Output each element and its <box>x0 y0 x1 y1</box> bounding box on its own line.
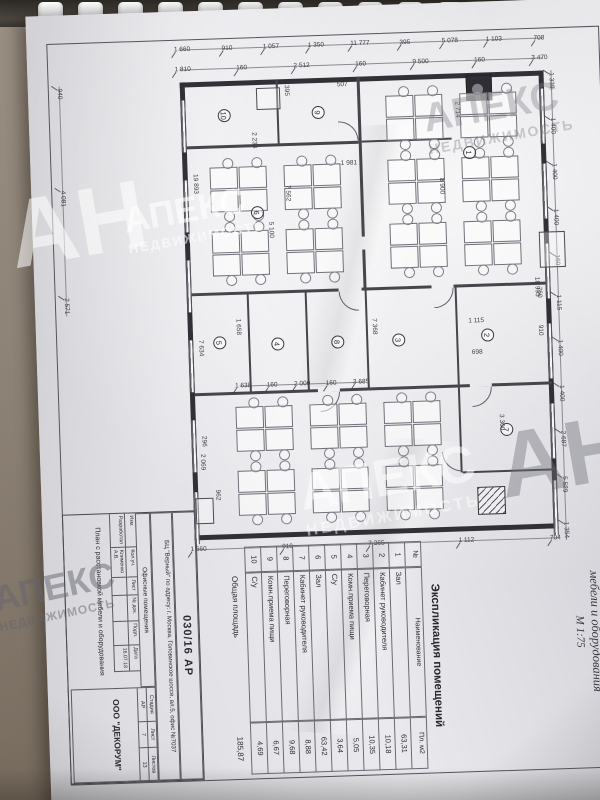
room-number: 3 <box>392 333 405 346</box>
dim-value: 3 470 <box>529 54 550 62</box>
sig-value-cell: Разработал <box>109 514 125 548</box>
desk-cluster <box>384 400 441 446</box>
chair <box>355 511 366 522</box>
sig-header-cell: Лист <box>126 577 138 595</box>
dim-value: 1 400 <box>549 116 557 137</box>
desk-cluster <box>462 155 519 201</box>
explication-cell: 6,67 <box>266 722 284 775</box>
dim-value: 1 660 <box>172 46 193 54</box>
window <box>542 163 549 218</box>
stage-value: АР <box>137 688 147 722</box>
explication-cell: 63,31 <box>394 717 412 770</box>
desk <box>386 488 415 511</box>
room-number: 9 <box>311 106 324 119</box>
partition-wall <box>192 288 339 296</box>
desk-cluster <box>213 230 270 276</box>
dim-value: 940 <box>56 86 63 101</box>
stage-block: Стадия Лист Листов АР 7 13 ООО "ДЕКОРУМ" <box>71 687 159 784</box>
desk <box>413 423 442 446</box>
dim-value: 160 <box>324 379 339 386</box>
door-arc <box>434 288 455 309</box>
desk <box>419 245 448 268</box>
explication-cell: 9 <box>260 546 277 573</box>
dim-value: 1 400 <box>550 161 558 182</box>
desk <box>315 227 344 250</box>
dim-value: 1 354 <box>562 520 570 541</box>
chair <box>281 513 292 524</box>
window <box>180 100 187 152</box>
desk <box>339 426 368 449</box>
dim-label: 1 981 <box>341 159 358 167</box>
window <box>188 340 195 392</box>
desk <box>212 231 241 254</box>
desk <box>386 118 415 141</box>
desk <box>286 251 315 274</box>
desk <box>338 403 367 426</box>
explication-cell: 1 <box>388 541 405 568</box>
dim-value: 1 810 <box>172 66 193 74</box>
dim-label: 962 <box>214 489 221 500</box>
desk <box>238 166 267 189</box>
desk <box>460 115 489 138</box>
shaft <box>195 498 214 525</box>
chair <box>298 208 309 219</box>
explication-cell: 8,88 <box>298 720 316 773</box>
desk <box>384 424 413 447</box>
sheet-label: Лист <box>147 722 157 748</box>
dim-value: 910 <box>219 44 234 51</box>
dim-value: 1 112 <box>456 537 476 545</box>
sheet-value: 7 <box>138 722 148 748</box>
dim-label: 19 893 <box>192 174 200 194</box>
desk-cluster <box>236 405 293 451</box>
desk <box>414 464 443 487</box>
col-header-no: № <box>404 541 422 568</box>
chair <box>279 449 290 460</box>
chair <box>429 508 440 519</box>
chair <box>224 211 235 222</box>
sig-value-cell <box>112 596 128 622</box>
explication-cell: 8 <box>276 545 293 572</box>
dim-value: 1 339 <box>547 70 555 91</box>
dim-label: 2 234 <box>250 132 258 149</box>
explication-cell: 2 <box>372 542 389 569</box>
sig-header-cell: № док. <box>127 595 139 621</box>
partition-wall <box>463 468 555 473</box>
desk <box>311 468 340 491</box>
chair <box>507 263 518 274</box>
window <box>191 420 198 472</box>
chair <box>400 139 411 150</box>
chair <box>226 275 237 286</box>
dim-value: 5 529 <box>561 474 569 495</box>
sig-value-cell: 16.07.18 <box>113 646 129 672</box>
desk <box>212 254 241 277</box>
desk <box>309 404 338 427</box>
title-block: 030/16 АР БЦ "Верный" по адресу: г. Моск… <box>62 510 205 784</box>
chair <box>255 274 266 285</box>
sig-header-cell: Подп. <box>127 621 139 645</box>
desk <box>489 114 518 137</box>
chair <box>404 267 415 278</box>
explication-title: Экспликация помещений <box>427 540 447 770</box>
dim-label: 2 714 <box>453 101 461 118</box>
chair <box>433 266 444 277</box>
room-number: 2 <box>481 328 494 341</box>
desk <box>493 242 522 265</box>
dim-label: 3 300 <box>498 414 506 431</box>
desk <box>283 164 312 187</box>
explication-cell: 10,18 <box>378 718 396 771</box>
explication-cell: 5 <box>324 544 341 571</box>
chair <box>300 272 311 283</box>
dim-value: 395 <box>397 38 412 45</box>
desk <box>418 222 447 245</box>
desk-cluster <box>312 467 369 513</box>
desk <box>385 95 414 118</box>
shaft <box>256 87 281 110</box>
chair <box>402 203 413 214</box>
desk-cluster <box>460 91 517 137</box>
desk <box>238 470 267 493</box>
desk <box>461 156 490 179</box>
dim-value: 160 <box>265 381 280 388</box>
dim-value: 708 <box>531 34 546 41</box>
desk <box>463 220 492 243</box>
total-value: 185,87 <box>231 723 252 776</box>
door-arc <box>472 386 493 407</box>
explication-cell: 4,69 <box>250 722 268 775</box>
chair <box>324 448 335 459</box>
sheets-value: 13 <box>139 748 149 782</box>
desk-cluster <box>390 222 447 268</box>
chair <box>398 445 409 456</box>
explication-cell: 7 <box>292 545 309 572</box>
desk-cluster <box>464 219 521 265</box>
desk <box>265 428 294 451</box>
desk <box>459 92 488 115</box>
window <box>549 403 556 458</box>
dim-value: 2 687 <box>559 429 567 450</box>
chair <box>429 138 440 149</box>
dim-value: 4 081 <box>59 189 67 210</box>
dimension-chain-bottom: 9404 0812 571 <box>56 86 76 316</box>
stage-label: Стадия <box>146 688 156 722</box>
desk <box>267 469 296 492</box>
desk-cluster <box>386 94 443 140</box>
partition-wall <box>357 77 365 237</box>
dim-label: 698 <box>472 349 483 356</box>
desk <box>414 94 443 117</box>
chair <box>326 512 337 523</box>
drawing-sheet: План расстановки мебели и оборудования М… <box>46 26 600 786</box>
partition-wall <box>187 141 359 150</box>
dim-value: 1 400 <box>558 383 566 404</box>
desk-cluster <box>239 469 296 515</box>
dim-value: 1 057 <box>261 43 282 51</box>
dim-value: 5 078 <box>439 37 460 45</box>
dim-label: 507 <box>337 81 348 88</box>
dim-label: 1 658 <box>234 319 242 336</box>
chair <box>353 447 364 458</box>
explication-cell: 5,05 <box>346 719 364 772</box>
dim-label: 2 069 <box>199 454 207 471</box>
desk <box>267 492 296 515</box>
partition-wall <box>362 285 432 290</box>
partition-wall <box>362 250 366 290</box>
desk <box>209 167 238 190</box>
room-number: 8 <box>331 335 344 348</box>
desk <box>264 405 293 428</box>
dim-label: 5 100 <box>267 222 275 239</box>
dim-value: 2 512 <box>291 62 312 70</box>
desk-cluster <box>284 163 341 209</box>
dim-value: 1 400 <box>556 337 564 358</box>
col-header-area: Пл. м2 <box>410 717 429 770</box>
paper-sheet: План расстановки мебели и оборудования М… <box>25 0 600 800</box>
dim-label: 910 <box>537 325 544 336</box>
explication-cell: 6 <box>308 544 325 571</box>
room-number: 5 <box>213 336 226 349</box>
desk-cluster <box>386 464 443 510</box>
dim-value: 160 <box>235 64 250 71</box>
sig-value-cell <box>111 578 127 596</box>
room-number: 10 <box>218 109 231 122</box>
desk <box>340 467 369 490</box>
dim-label: 7 562 <box>284 185 292 202</box>
chair <box>329 271 340 282</box>
sig-value-cell <box>112 622 128 646</box>
desk <box>488 91 517 114</box>
dim-label: 8 900 <box>438 178 446 195</box>
explication-cell: 63,42 <box>314 720 332 773</box>
desk <box>312 490 341 513</box>
photo-of-floor-plan-document: План расстановки мебели и оборудования М… <box>0 0 600 800</box>
desk <box>241 253 270 276</box>
dim-value: 11 777 <box>349 40 373 48</box>
desk <box>390 246 419 269</box>
desk <box>238 493 267 516</box>
explication-table: Экспликация помещений № Наименование Пл.… <box>225 540 447 777</box>
explication-rows: 1Зал63,312Кабинет руководителя10,183Пере… <box>244 541 412 776</box>
desk <box>341 490 370 513</box>
dim-label: 7 634 <box>197 340 205 357</box>
desk <box>210 190 239 213</box>
room-number: 4 <box>271 337 284 350</box>
window <box>552 480 559 535</box>
chair <box>505 200 516 211</box>
door-arc <box>442 451 463 472</box>
desk <box>315 250 344 273</box>
sig-header-cell: Дата <box>128 645 140 671</box>
desk-cluster <box>287 227 344 273</box>
partition-wall <box>455 287 460 385</box>
desk <box>312 163 341 186</box>
chair <box>431 202 442 213</box>
desk <box>236 429 265 452</box>
explication-cell: 10,35 <box>362 718 380 771</box>
desk <box>388 182 417 205</box>
desk <box>415 117 444 140</box>
dim-value: 9 500 <box>410 58 431 66</box>
dim-label: 395 <box>283 85 290 96</box>
desk <box>415 487 444 510</box>
desk <box>310 427 339 450</box>
desk <box>235 406 264 429</box>
desk <box>491 178 520 201</box>
dim-value: 160 <box>354 60 369 67</box>
window <box>539 89 546 144</box>
company-name: ООО "ДЕКОРУМ" <box>111 688 140 781</box>
desk <box>490 155 519 178</box>
dim-label: 296 <box>200 436 207 447</box>
dim-label: 18 993 <box>533 277 541 297</box>
desk <box>387 159 416 182</box>
chair <box>427 444 438 455</box>
chair <box>252 514 263 525</box>
sheets-label: Листов <box>148 748 158 782</box>
shaft <box>539 231 566 268</box>
chair <box>478 264 489 275</box>
dim-value: 2 571 <box>63 296 71 317</box>
window <box>183 180 190 232</box>
partition-wall <box>195 389 318 396</box>
desk <box>385 465 414 488</box>
dim-value: 160 <box>472 56 487 63</box>
partition-wall <box>365 290 370 390</box>
sig-header-cell: Изм. <box>124 513 136 547</box>
window <box>186 260 193 312</box>
dim-value: 1 400 <box>552 207 560 228</box>
explication-cell: 4 <box>340 543 357 570</box>
chair <box>503 136 514 147</box>
desk <box>241 230 270 253</box>
explication-cell: 3 <box>356 542 373 569</box>
column-hatched <box>477 486 506 515</box>
door-arc <box>338 121 359 142</box>
desk <box>286 228 315 251</box>
chair <box>327 207 338 218</box>
chair <box>250 450 261 461</box>
desk <box>462 179 491 202</box>
sig-value-cell: Клименко А.В. <box>110 548 126 578</box>
chair <box>400 509 411 520</box>
dim-value: 1 103 <box>484 35 505 43</box>
desk-cluster <box>210 166 267 212</box>
spacer <box>225 547 245 574</box>
desk <box>313 186 342 209</box>
desk <box>464 243 493 266</box>
desk <box>492 219 521 242</box>
dim-label: 1 115 <box>468 317 484 325</box>
dim-label: 7 368 <box>371 318 379 335</box>
chair <box>476 200 487 211</box>
desk <box>389 223 418 246</box>
dim-value: 1 115 <box>555 292 563 312</box>
dim-value: 1 350 <box>306 41 327 49</box>
partition-wall <box>492 381 552 386</box>
chair <box>474 137 485 148</box>
explication-cell: 9,68 <box>282 721 300 774</box>
desk-cluster <box>310 403 367 449</box>
explication-cell: 10 <box>244 546 261 573</box>
window <box>547 323 554 378</box>
door-arc <box>339 291 360 312</box>
sig-header-cell: Кол.уч. <box>125 547 137 577</box>
signature-block: Изм.Кол.уч.Лист№ док.Подп.Дата Разработа… <box>65 513 141 689</box>
explication-cell: 3,64 <box>330 719 348 772</box>
desk <box>383 401 412 424</box>
desk <box>412 400 441 423</box>
